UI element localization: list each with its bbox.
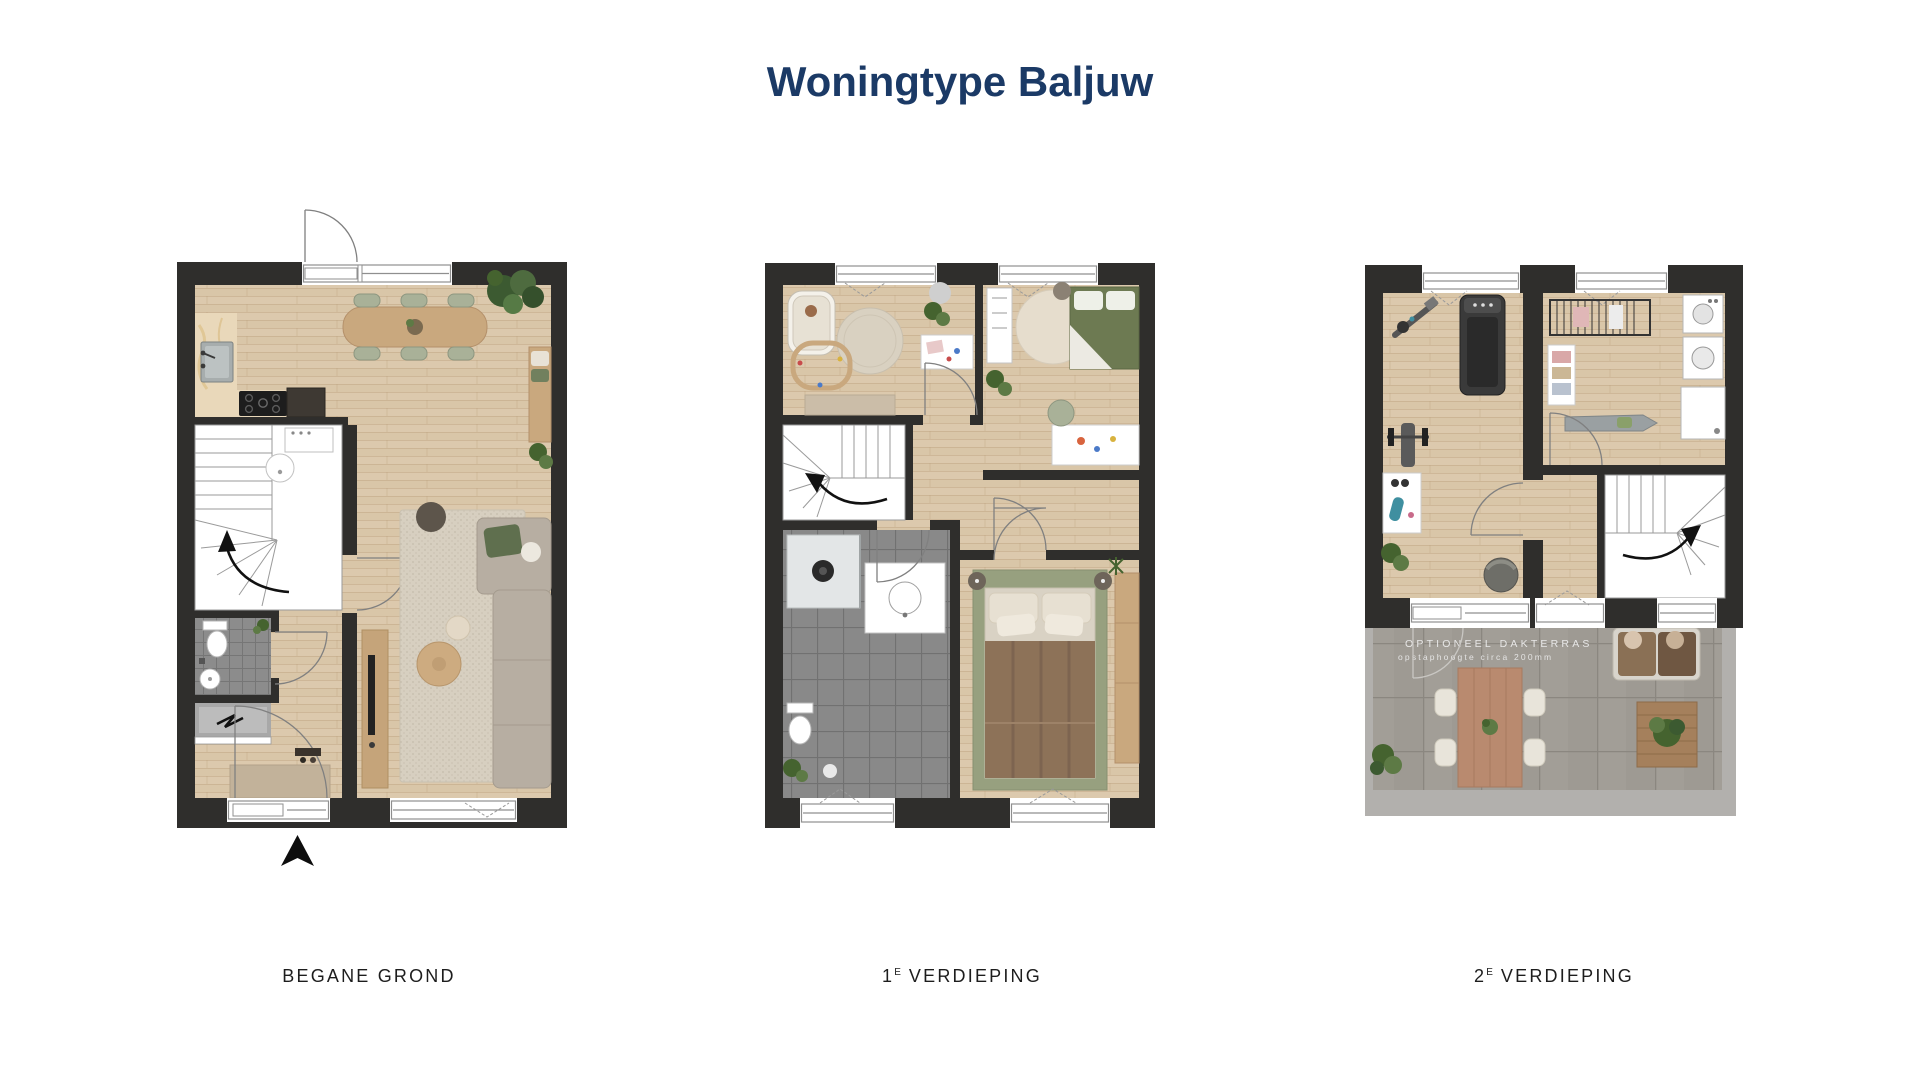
bathroom bbox=[783, 530, 950, 798]
floorplan-ground-floor bbox=[177, 200, 567, 872]
floorplan-second-floor: OPTIONEEL DAKTERRAS opstaphoogte circa 2… bbox=[1365, 265, 1743, 830]
ironing-board bbox=[1565, 415, 1657, 431]
staircase bbox=[195, 425, 342, 610]
page-title: Woningtype Baljuw bbox=[767, 58, 1154, 106]
dining-table bbox=[343, 307, 487, 347]
floor-label-1e-verdieping: 1EVERDIEPING bbox=[882, 966, 1042, 987]
floorplan-first-floor bbox=[765, 263, 1155, 828]
front-door-swing bbox=[305, 210, 357, 262]
staircase bbox=[783, 425, 905, 520]
staircase bbox=[1605, 475, 1725, 598]
roof-terrace: OPTIONEEL DAKTERRAS opstaphoogte circa 2… bbox=[1365, 628, 1736, 816]
terrace-note-line2: opstaphoogte circa 200mm bbox=[1398, 652, 1553, 662]
floorplan-sheet: Woningtype Baljuw bbox=[0, 0, 1920, 1080]
floor-label-2e-verdieping: 2EVERDIEPING bbox=[1474, 966, 1634, 987]
living-room-window bbox=[390, 798, 517, 822]
front-door-and-window bbox=[302, 262, 452, 285]
floor-label-begane-grond: BEGANE GROND bbox=[282, 966, 455, 987]
terrace-note-line1: OPTIONEEL DAKTERRAS bbox=[1405, 638, 1593, 650]
north-arrow-icon bbox=[281, 835, 314, 866]
